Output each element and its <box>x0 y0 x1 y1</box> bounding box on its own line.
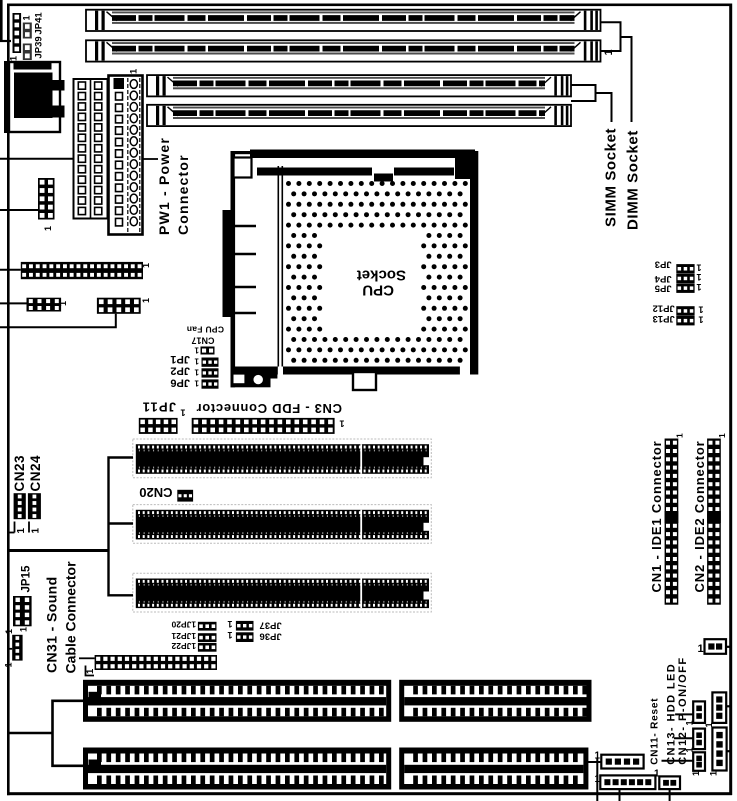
svg-text:CN23: CN23 <box>12 455 27 492</box>
svg-text:JP41: JP41 <box>34 12 45 35</box>
svg-text:1: 1 <box>194 357 199 366</box>
svg-text:JP39: JP39 <box>34 36 45 58</box>
svg-text:CN3 - FDD Connector: CN3 - FDD Connector <box>196 401 342 416</box>
svg-text:JP11: JP11 <box>142 400 176 415</box>
svg-text:1: 1 <box>339 419 344 429</box>
svg-text:1: 1 <box>43 226 53 231</box>
svg-text:CN2 - IDE2 Connector: CN2 - IDE2 Connector <box>692 440 707 592</box>
svg-text:PW1 - Power: PW1 - Power <box>156 137 172 235</box>
svg-text:1: 1 <box>696 263 701 273</box>
svg-text:1: 1 <box>19 627 29 632</box>
svg-text:1: 1 <box>31 528 42 534</box>
svg-text:1JP20: 1JP20 <box>171 620 196 630</box>
svg-text:1: 1 <box>227 619 232 629</box>
svg-text:CN13- HDD LED: CN13- HDD LED <box>666 663 678 765</box>
svg-text:1: 1 <box>129 68 140 74</box>
svg-text:1: 1 <box>717 433 727 438</box>
svg-text:JP6: JP6 <box>170 377 190 389</box>
svg-text:1JP21: 1JP21 <box>171 631 196 641</box>
svg-text:1: 1 <box>194 379 199 388</box>
svg-text:SIMM Socket: SIMM Socket <box>603 128 620 227</box>
svg-text:1: 1 <box>194 367 199 376</box>
svg-text:1: 1 <box>698 314 703 324</box>
svg-text:1: 1 <box>4 662 14 667</box>
svg-text:DIMM Socket: DIMM Socket <box>625 130 642 230</box>
svg-text:1: 1 <box>675 433 685 438</box>
svg-text:Connector: Connector <box>175 154 191 235</box>
svg-text:1: 1 <box>180 408 185 418</box>
svg-text:CN24: CN24 <box>28 455 43 492</box>
svg-text:1: 1 <box>85 668 96 674</box>
svg-text:CN17: CN17 <box>191 336 214 346</box>
svg-text:CN31 - Sound: CN31 - Sound <box>44 576 60 673</box>
svg-text:1: 1 <box>9 56 19 61</box>
svg-text:1: 1 <box>696 282 701 292</box>
svg-text:1: 1 <box>691 771 701 776</box>
svg-text:JP36: JP36 <box>260 630 282 641</box>
svg-text:Socket: Socket <box>357 267 406 284</box>
svg-text:Cable Connector: Cable Connector <box>63 561 79 674</box>
svg-text:1: 1 <box>58 301 68 306</box>
svg-text:JP3: JP3 <box>655 259 672 270</box>
svg-text:1: 1 <box>141 263 151 268</box>
svg-text:CN12- P-ON/OFF: CN12- P-ON/OFF <box>677 656 689 764</box>
svg-text:1: 1 <box>227 630 232 640</box>
svg-text:1: 1 <box>698 305 703 315</box>
svg-text:1JP22: 1JP22 <box>171 641 196 651</box>
svg-text:1: 1 <box>696 272 701 282</box>
svg-text:CN1 - IDE1 Connector: CN1 - IDE1 Connector <box>649 440 664 592</box>
svg-text:1: 1 <box>141 298 151 303</box>
svg-text:JP4: JP4 <box>654 273 672 284</box>
svg-text:CPU Fan: CPU Fan <box>186 325 224 335</box>
svg-text:JP13: JP13 <box>653 313 675 324</box>
svg-text:1: 1 <box>709 771 719 776</box>
svg-text:1: 1 <box>16 528 27 534</box>
svg-text:JP37: JP37 <box>260 619 282 630</box>
svg-text:1: 1 <box>194 346 199 355</box>
svg-text:JP5: JP5 <box>654 282 672 293</box>
svg-text:JP1: JP1 <box>170 353 190 365</box>
svg-text:JP12: JP12 <box>653 303 675 314</box>
svg-text:1: 1 <box>4 629 14 634</box>
svg-text:1: 1 <box>698 643 704 655</box>
svg-text:JP2: JP2 <box>170 365 190 377</box>
svg-text:CN11- Reset: CN11- Reset <box>649 698 660 765</box>
svg-text:JP15: JP15 <box>20 565 32 592</box>
svg-text:1: 1 <box>603 49 615 55</box>
svg-text:CN20: CN20 <box>139 485 172 500</box>
svg-text:1: 1 <box>22 15 32 20</box>
